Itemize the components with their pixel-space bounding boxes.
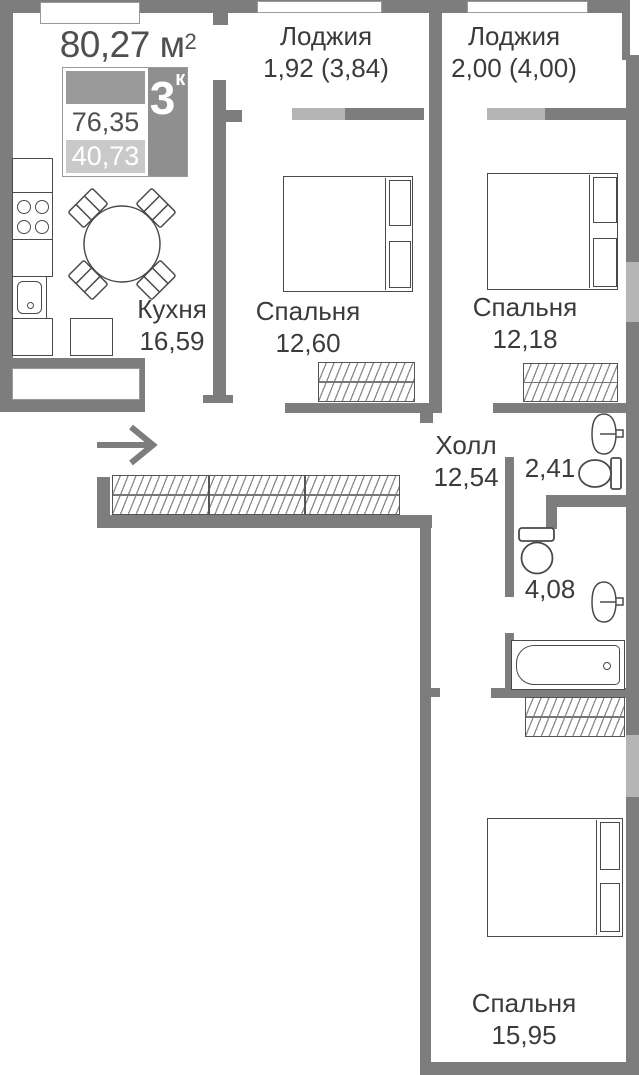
room-name: Лоджия [263,20,389,52]
sink-icon [590,412,624,456]
kitchen-sink [12,276,47,319]
loggia2-glazing-wall [545,108,627,120]
bottom-wall [420,1062,639,1075]
nightstand [593,177,617,223]
fridge [70,318,113,356]
stove [12,192,53,240]
legend-areas: 76,35 40,73 [63,68,148,176]
toilet-icon [574,454,624,494]
room-area: 15,95 [472,1019,576,1051]
loggia1-top-window [257,1,382,13]
bathroom-left-wall-upper [505,457,514,597]
loggia2-top-window [467,1,588,13]
nightstand [600,883,620,932]
bathroom-label: 4,08 [525,573,576,605]
kitchen-top-window [40,2,140,24]
bedroom3-side-window [626,735,639,797]
entry-arrow-icon [95,425,165,465]
total-area-value: 80,27 [60,24,150,65]
bedroom1-label: Спальня 12,60 [256,295,360,359]
room-area: 1,92 (3,84) [263,52,389,84]
nightstand [600,822,620,870]
nightstand [593,238,617,287]
legend-living-area: 40,73 [66,140,145,173]
kitchen-bottom-window [12,368,140,400]
area-legend: 76,35 40,73 3к [62,67,188,177]
wardrobe-bedroom1 [318,362,415,402]
corridor-bottom-stub [431,688,440,697]
room-name: Спальня [472,987,576,1019]
kitchen-loggia-wall-stub [213,0,228,25]
wc-bathroom-divider-wall [546,495,628,507]
room-area: 4,08 [525,573,576,605]
room-area: 16,59 [137,325,207,357]
room-area: 12,54 [433,461,498,493]
loggia2-window [487,108,545,120]
room-name: Лоджия [451,20,577,52]
bedroom2-side-window [626,262,639,322]
rooms-count-badge: 3к [148,68,187,176]
kitchen-counter [12,239,53,277]
bedroom2-label: Спальня 12,18 [473,291,577,355]
sink-icon [590,580,624,624]
room-name: Холл [433,429,498,461]
room-area: 2,00 (4,00) [451,52,577,84]
bathtub [511,640,625,690]
total-area-title: 80,27 м2 [40,24,216,66]
right-wall [626,55,639,1062]
bedroom1-bedroom2-wall [429,0,442,413]
kitchen-label: Кухня 16,59 [137,293,207,357]
loggia1-window [292,108,345,120]
kitchen-wall-endcap [203,395,233,403]
hall-bottom-wall [97,515,432,528]
loggia1-glazing-stub [226,110,242,122]
nightstand [389,241,411,288]
loggia1-glazing-wall [345,108,424,120]
room-name: Спальня [473,291,577,323]
room-name: Кухня [137,293,207,325]
corridor-left-wall [420,515,431,1062]
bedroom3-label: Спальня 15,95 [472,987,576,1051]
total-area-unit: м [160,24,185,65]
loggia1-label: Лоджия 1,92 (3,84) [263,20,389,84]
room-area: 12,60 [256,327,360,359]
hall-label: Холл 12,54 [433,429,498,493]
kitchen-counter [12,318,53,356]
floor-plan: 80,27 м2 76,35 40,73 3к Лоджия 1,92 (3,8… [0,0,639,1075]
dining-table-icon [58,180,188,310]
legend-swatch [66,71,145,104]
kitchen-bedroom1-wall [213,80,226,395]
toilet-icon [515,526,559,578]
nightstand [389,180,411,226]
wardrobe-bedroom3 [525,697,625,737]
room-area: 12,18 [473,323,577,355]
kitchen-cabinet [12,158,53,193]
wc-label: 2,41 [525,452,576,484]
loggia2-label: Лоджия 2,00 (4,00) [451,20,577,84]
wardrobe-bedroom2 [523,363,618,402]
room-name: Спальня [256,295,360,327]
wardrobe-hall [112,475,400,515]
legend-total-area: 76,35 [66,106,145,139]
bedroom1-bottom-wall [285,403,433,413]
room-area: 2,41 [525,452,576,484]
hall-junction-wall [420,403,433,423]
right-wall-step [622,10,630,60]
